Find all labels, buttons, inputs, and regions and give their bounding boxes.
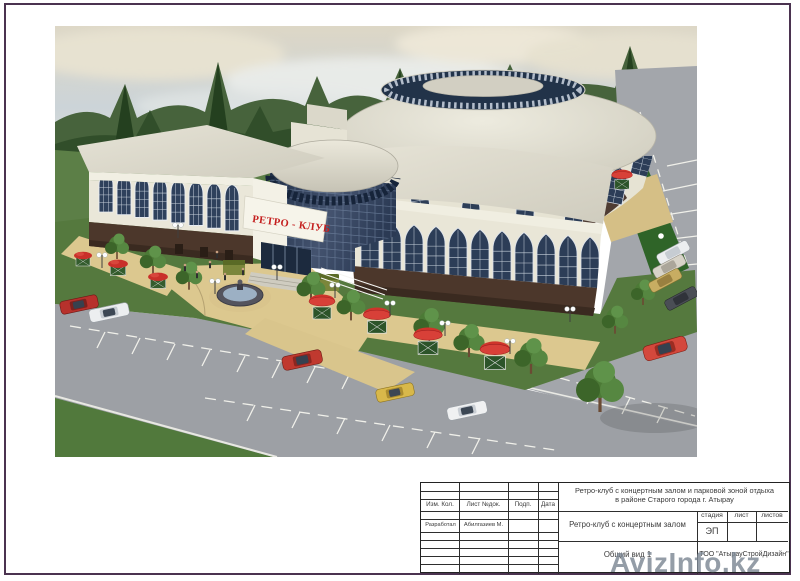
drawing-sheet: РЕТРО - КЛУБ	[0, 0, 800, 581]
project-title: Ретро-клуб с концертным залом и парковой…	[558, 487, 791, 504]
col-header-list: Лист №док.	[459, 501, 508, 508]
col-header-data: Дата	[538, 501, 558, 508]
roof-ring-skylight	[381, 70, 585, 110]
architectural-rendering: РЕТРО - КЛУБ	[55, 26, 697, 457]
sheet-label: лист	[727, 512, 756, 520]
col-header-podp: Подп.	[508, 501, 538, 508]
stage-value: ЭП	[697, 526, 727, 536]
col-header-izm: Изм. Кол.	[421, 501, 459, 508]
project-title-line2: в районе Старого города г. Атырау	[615, 495, 734, 504]
stage-label: стадия	[697, 512, 727, 520]
developer-name: Абилгазиев М.	[459, 522, 508, 529]
role-label: Разработал	[422, 522, 459, 528]
watermark: AvizInfo.kz	[610, 547, 761, 579]
sheets-label: листов	[756, 512, 788, 520]
object-name: Ретро-клуб с концертным залом	[558, 521, 697, 530]
